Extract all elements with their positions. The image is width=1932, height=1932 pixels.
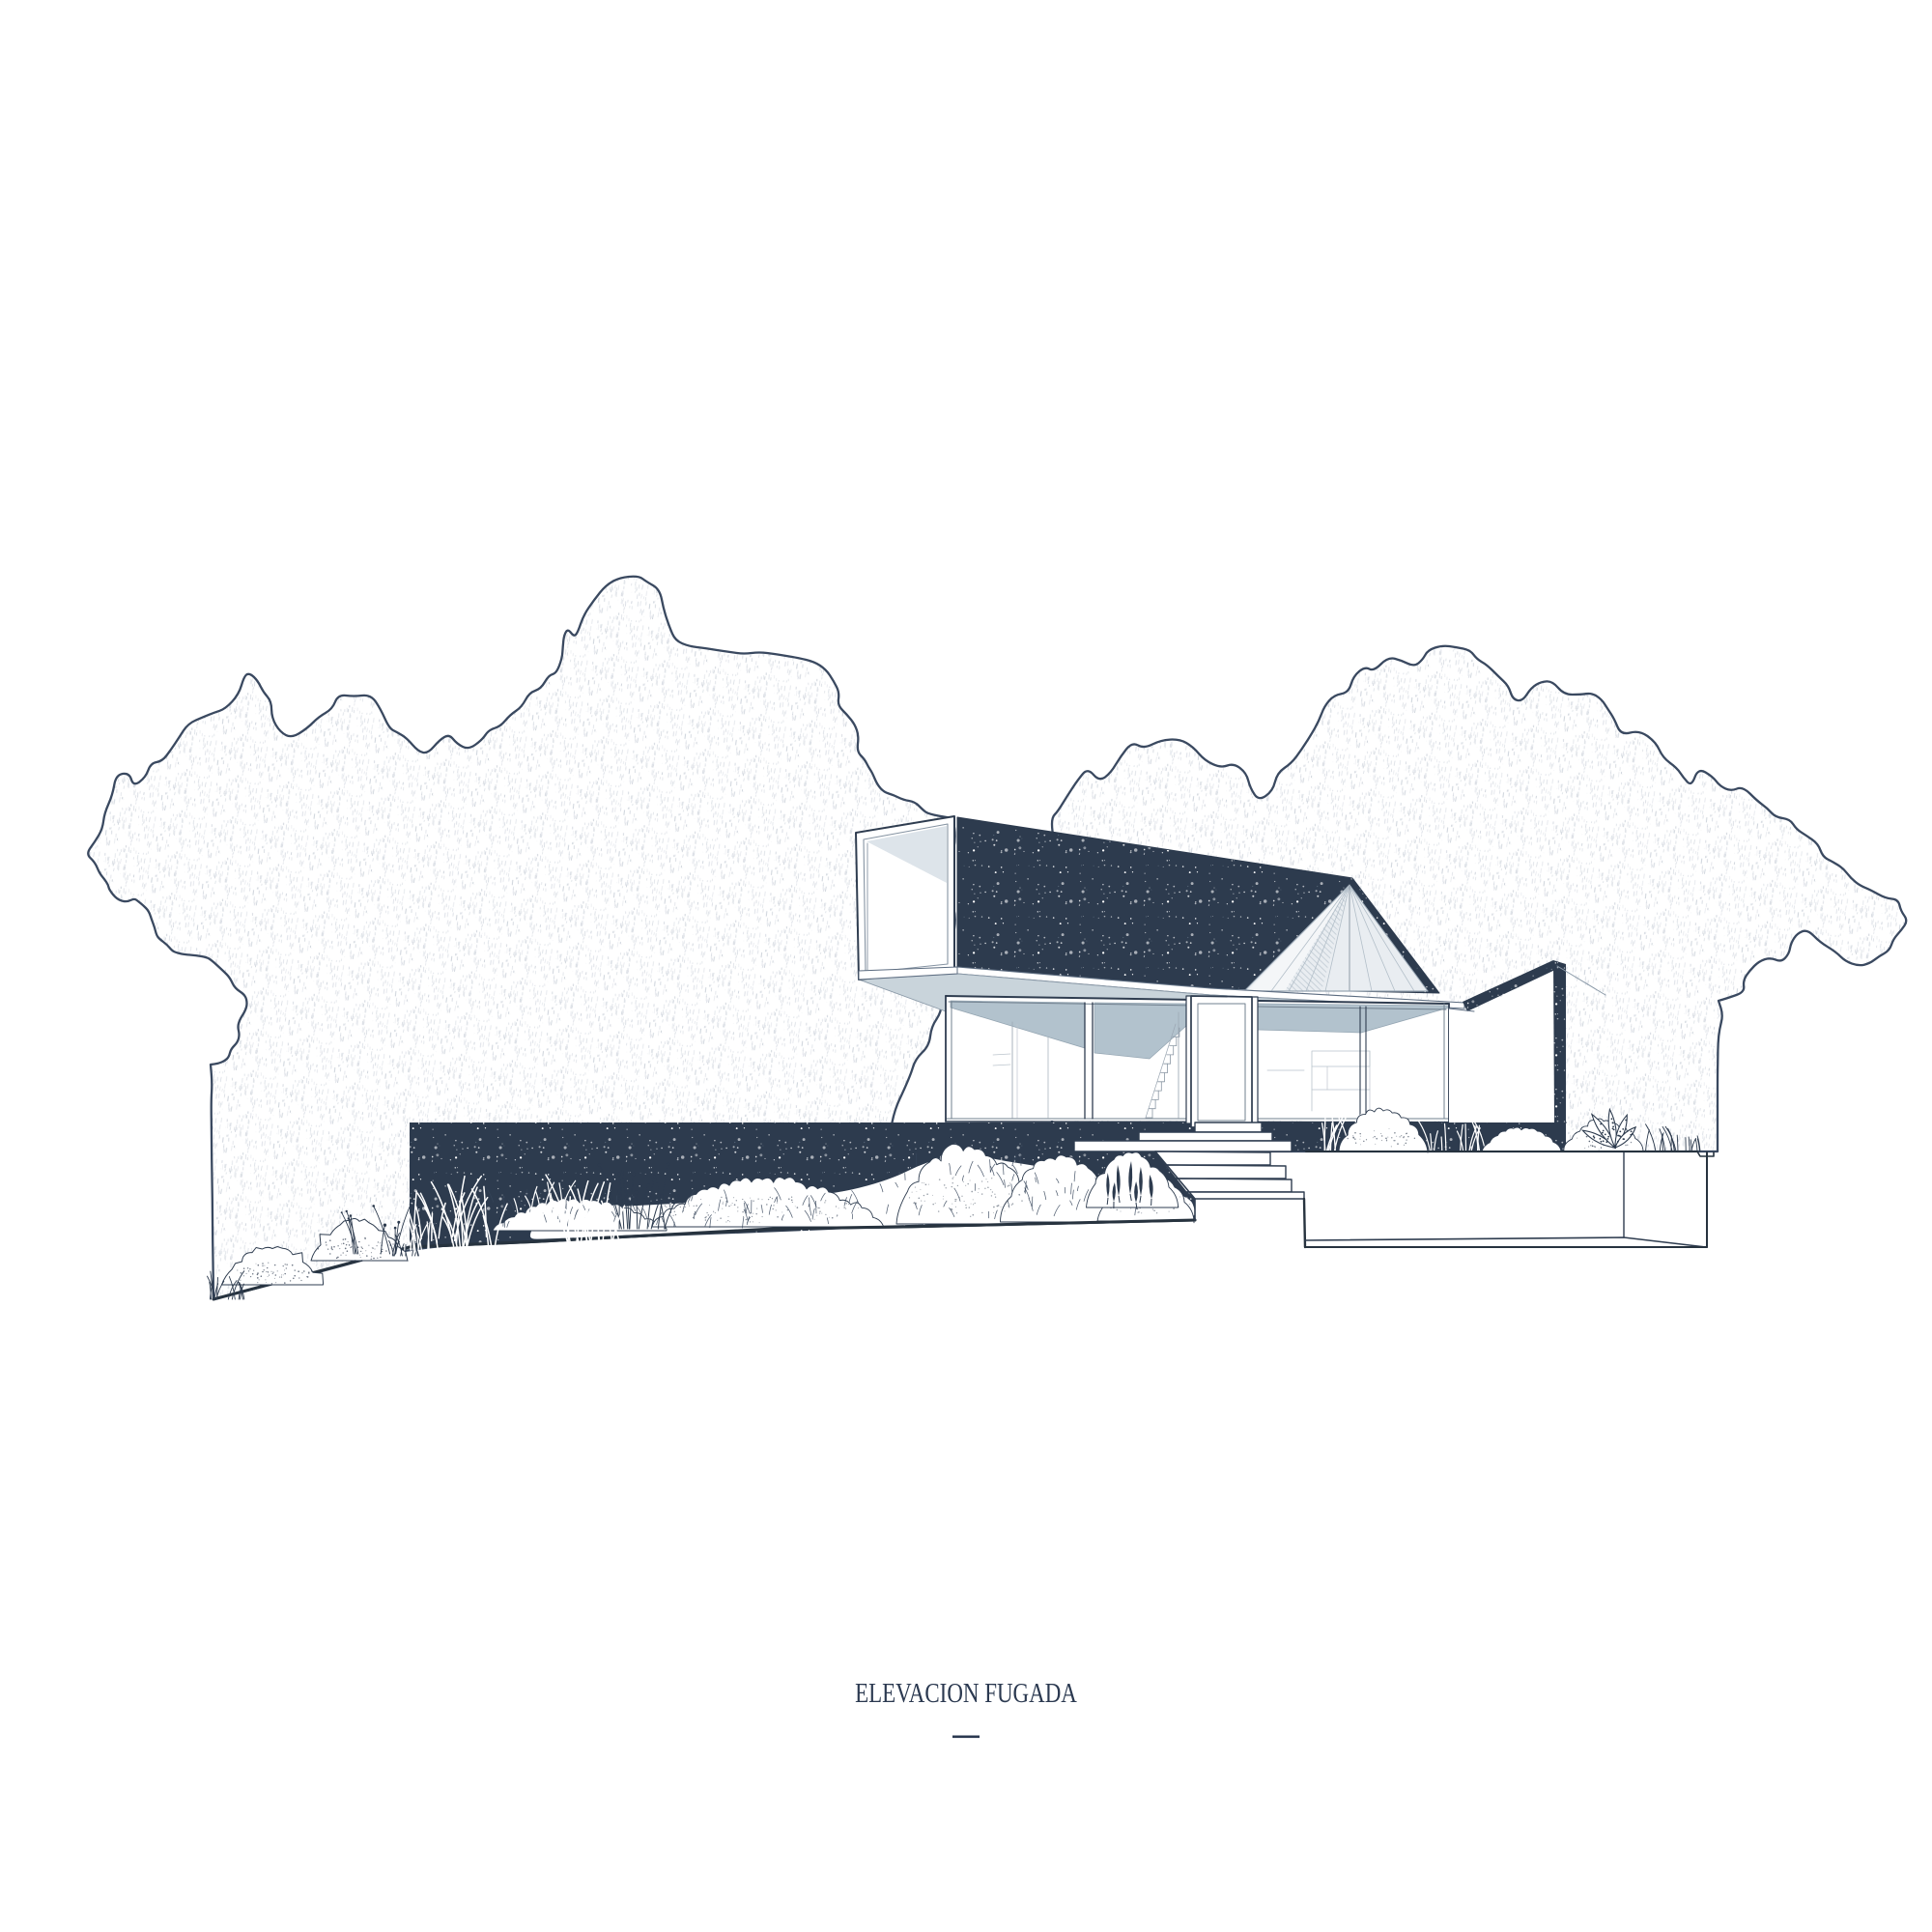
- svg-text:ELEVACION FUGADA: ELEVACION FUGADA: [855, 1678, 1077, 1709]
